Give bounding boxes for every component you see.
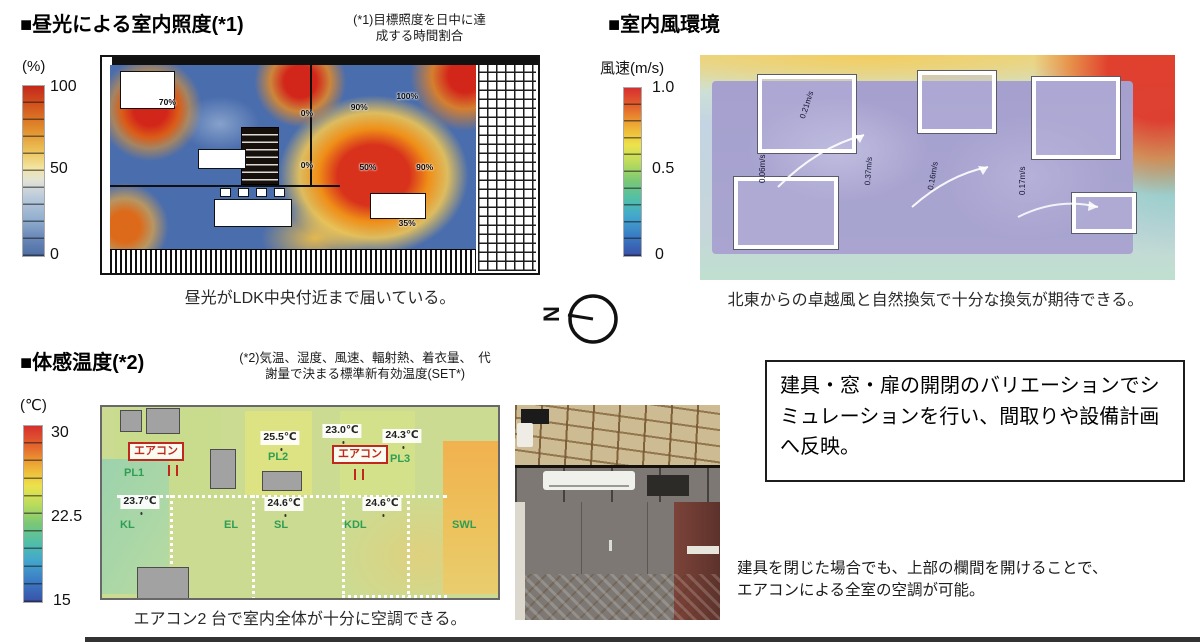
daylight-plan-wall [110, 185, 340, 187]
wind-tick-0: 0 [655, 246, 664, 264]
daylight-note-line2: 成する時間割合 [376, 29, 464, 43]
daylight-pct-label: 70% [159, 97, 176, 107]
daylight-pct-label: 100% [396, 91, 418, 101]
callout-note: 建具を閉じた場合でも、上部の欄間を開けることで、 エアコンによる全室の空調が可能… [737, 558, 1200, 603]
callout-note-line1: 建具を閉じた場合でも、上部の欄間を開けることで、 [737, 558, 1200, 580]
photo-aircon-unit [543, 471, 635, 490]
photo-door-handle [609, 540, 612, 551]
north-compass: N [543, 288, 625, 350]
temp-value: 25.5℃ [260, 431, 299, 445]
temperature-legend-unit: (℃) [20, 396, 47, 414]
temp-value: 23.7℃ [120, 495, 159, 509]
aircon-airflow [362, 469, 364, 480]
room-name-kdl: KDL [344, 519, 367, 531]
daylight-pct-label: 90% [351, 102, 368, 112]
furniture [137, 567, 189, 599]
room-name-pl3: PL3 [390, 453, 410, 465]
stairs [241, 127, 279, 185]
daylight-note: (*1)目標照度を日中に達 成する時間割合 [322, 12, 517, 45]
room-divider [342, 495, 345, 600]
furniture-kitchen-counter [198, 149, 246, 169]
temp-value: 24.6℃ [264, 497, 303, 511]
room-divider [252, 495, 255, 600]
room-kdl [332, 499, 443, 595]
daylight-pct-label: 35% [399, 218, 416, 228]
bottom-bar [85, 637, 1200, 642]
wind-speed-label: 0.06m/s [758, 155, 767, 183]
furniture-closet [210, 449, 236, 489]
wind-tick-05: 0.5 [652, 160, 674, 178]
photo-pendant-lamp [517, 423, 533, 447]
room-name-el: EL [224, 519, 238, 531]
temperature-heatmap: エアコン エアコン 23.7℃ 25.5℃ 23.0℃ 24.3℃ 24.6℃ … [100, 405, 500, 600]
temperature-caption: エアコン2 台で室内全体が十分に空調できる。 [95, 605, 505, 629]
daylight-title: ■昼光による室内照度(*1) [20, 8, 244, 37]
furniture [262, 471, 302, 491]
photo-wood-floor [515, 574, 720, 620]
furniture-chair [238, 188, 249, 197]
daylight-pct-label: 90% [416, 162, 433, 172]
temp-value: 24.6℃ [362, 497, 401, 511]
room-name-sl: SL [274, 519, 288, 531]
temperature-legend-bar [23, 425, 43, 603]
room-divider [342, 595, 447, 598]
daylight-tick-100: 100 [50, 78, 77, 96]
wind-title: ■室内風環境 [608, 8, 720, 37]
slide: ■昼光による室内照度(*1) (*1)目標照度を日中に達 成する時間割合 (%)… [0, 0, 1200, 642]
furniture-dining-table [214, 199, 292, 227]
wind-legend-unit: 風速(m/s) [600, 57, 664, 78]
room-divider [407, 495, 410, 600]
furniture [146, 408, 180, 434]
furniture [120, 410, 142, 432]
daylight-plan-wall [112, 57, 538, 65]
aircon-airflow [168, 465, 170, 476]
photo-dark-fixture [647, 475, 689, 496]
daylight-pct-label: 0% [301, 160, 313, 170]
photo-pillar [515, 502, 525, 620]
daylight-legend-bar [22, 85, 45, 257]
compass-north-letter: N [543, 306, 564, 322]
wind-heatmap: 0.21m/s 0.06m/s 0.37m/s 0.16m/s 0.17m/s [700, 55, 1175, 280]
temperature-title: ■体感温度(*2) [20, 346, 144, 375]
callout-box: 建具・窓・扉の開閉のバリエーションでシミュレーションを行い、間取りや設備計画へ反… [765, 360, 1185, 482]
daylight-legend-unit: (%) [22, 58, 45, 75]
temp-tick-30: 30 [51, 424, 69, 442]
furniture-table [370, 193, 426, 219]
photo-desk [687, 546, 719, 554]
aircon-airflow [354, 469, 356, 480]
temperature-note-line1: (*2)気温、湿度、風速、輻射熱、着衣量、 代 [239, 351, 490, 365]
daylight-note-line1: (*1)目標照度を日中に達 [353, 13, 486, 27]
daylight-pct-label: 50% [359, 162, 376, 172]
wind-legend-bar [623, 87, 642, 257]
room-name-pl2: PL2 [268, 451, 288, 463]
temp-value: 24.3℃ [382, 429, 421, 443]
daylight-heatmap: 70% 0% 0% 90% 100% 50% 90% 35% [100, 55, 540, 275]
balcony-hatch [110, 249, 476, 273]
furniture-chair [256, 188, 267, 197]
temperature-note-line2: 謝量で決まる標準新有効温度(SET*) [265, 367, 465, 381]
wind-speed-label: 0.17m/s [1018, 167, 1027, 195]
callout-note-line2: エアコンによる全室の空調が可能。 [737, 580, 1200, 602]
aircon-airflow [176, 465, 178, 476]
balcony-grid [478, 65, 536, 271]
temp-value: 23.0℃ [322, 424, 361, 438]
photo-track-light [521, 409, 549, 424]
interior-photo [515, 405, 720, 620]
daylight-caption: 昼光がLDK中央付近まで届いている。 [100, 284, 540, 308]
temp-tick-15: 15 [53, 592, 71, 610]
room-name-swl: SWL [452, 519, 476, 531]
daylight-pct-label: 0% [301, 108, 313, 118]
temperature-note: (*2)気温、湿度、風速、輻射熱、着衣量、 代 謝量で決まる標準新有効温度(SE… [205, 350, 525, 383]
room-swl [443, 441, 498, 594]
furniture-chair [274, 188, 285, 197]
room-name-kl: KL [120, 519, 135, 531]
furniture-chair [220, 188, 231, 197]
daylight-tick-50: 50 [50, 160, 68, 178]
wind-tick-1: 1.0 [652, 79, 674, 97]
aircon-label: エアコン [128, 442, 184, 461]
daylight-tick-0: 0 [50, 246, 59, 264]
aircon-label: エアコン [332, 445, 388, 464]
temp-tick-225: 22.5 [51, 508, 82, 526]
wind-caption: 北東からの卓越風と自然換気で十分な換気が期待できる。 [678, 286, 1193, 310]
room-name-pl1: PL1 [124, 467, 144, 479]
